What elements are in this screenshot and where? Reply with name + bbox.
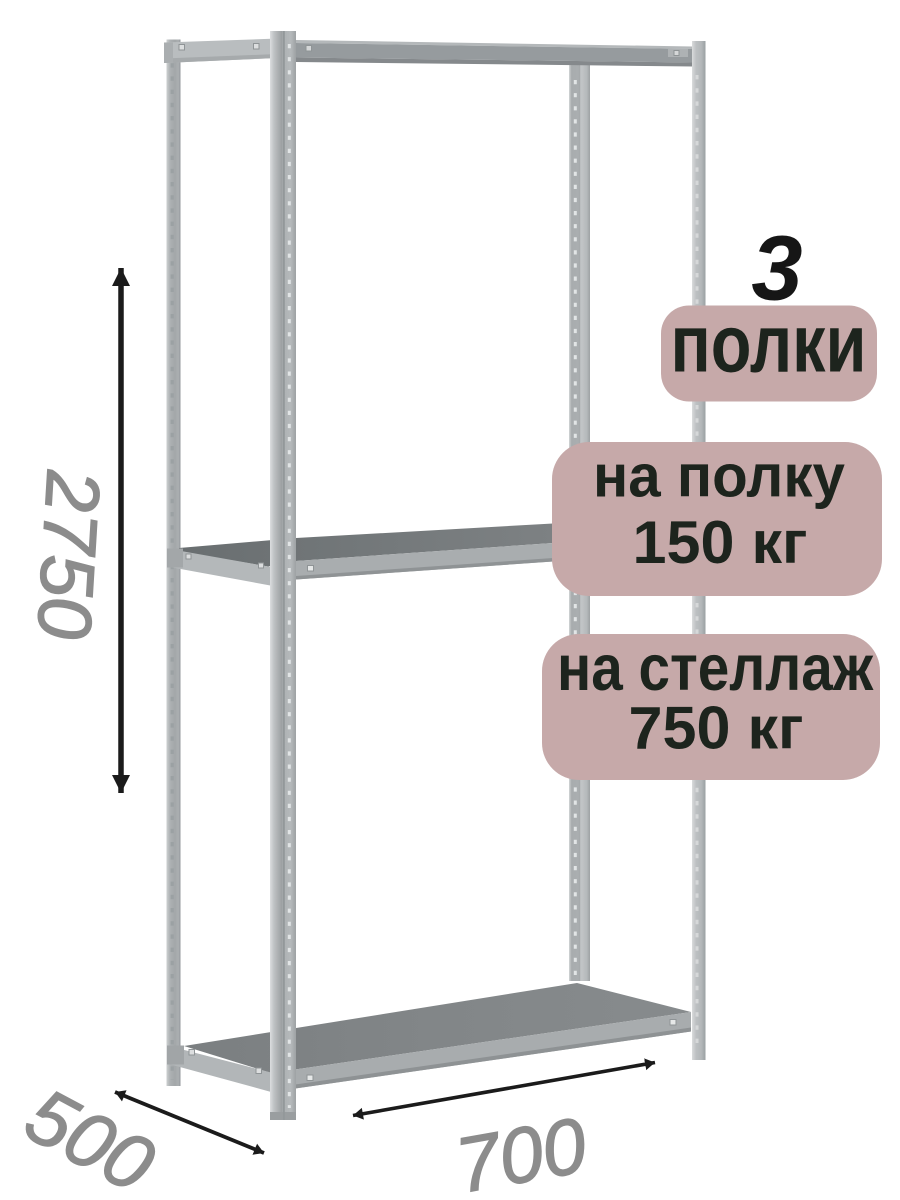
svg-text:на стеллаж: на стеллаж (557, 631, 874, 704)
svg-text:полки: полки (671, 299, 867, 390)
svg-text:2750: 2750 (20, 469, 115, 639)
svg-text:150 кг: 150 кг (633, 509, 808, 576)
svg-text:на полку: на полку (593, 443, 846, 510)
svg-text:750 кг: 750 кг (629, 695, 804, 762)
